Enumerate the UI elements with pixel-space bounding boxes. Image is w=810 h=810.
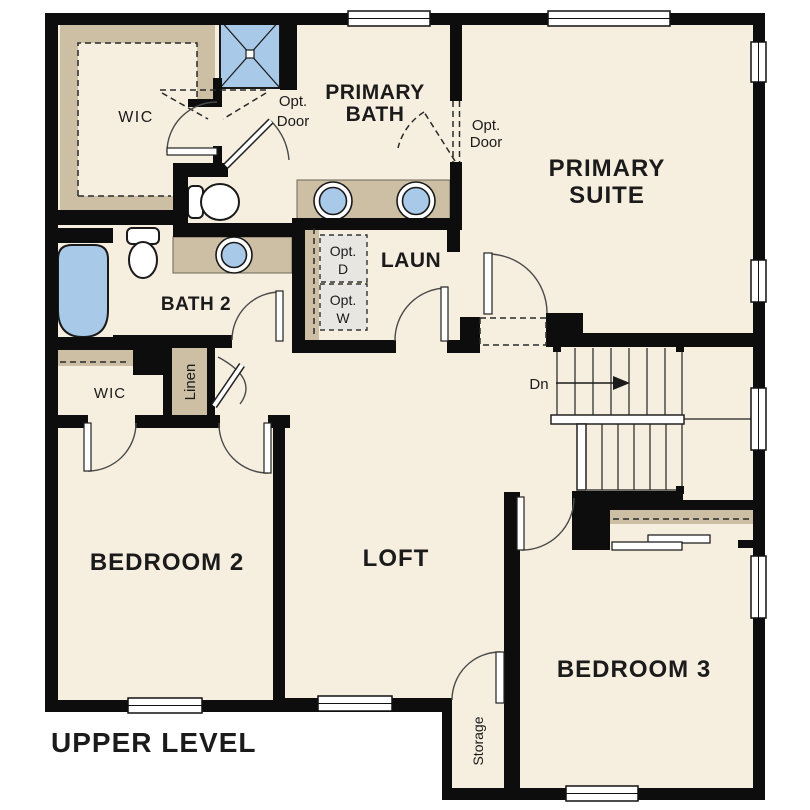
window: [751, 388, 766, 450]
room-label-bedroom2: BEDROOM 2: [90, 549, 244, 576]
sliding-door-panel: [612, 542, 682, 550]
room-label-primary-bath-line1: PRIMARY: [325, 81, 425, 104]
wall: [280, 13, 297, 90]
wall: [460, 317, 480, 347]
room-label-bedroom3: BEDROOM 3: [557, 656, 711, 683]
bedroom2-closet-shelf: [57, 348, 133, 366]
wic-shelf-right: [197, 25, 215, 103]
wall: [113, 335, 232, 348]
annotation-stairs-down: Dn: [529, 376, 548, 393]
sink-primary-left: [314, 182, 352, 220]
stair-handrail: [551, 415, 684, 424]
wall: [450, 13, 462, 101]
wall: [572, 493, 610, 550]
laundry-cabinet: [303, 225, 319, 341]
stair-stringer: [577, 424, 586, 490]
wic-shelf-left: [60, 25, 78, 210]
room-label-primary-suite-line1: PRIMARY: [549, 155, 666, 182]
wall: [45, 210, 175, 225]
room-label-loft: LOFT: [363, 545, 430, 572]
toilet-bath2: [127, 228, 159, 278]
shower-drain: [246, 50, 254, 58]
wall: [738, 540, 755, 548]
sink-primary-right: [397, 182, 435, 220]
window: [751, 42, 766, 82]
floor-plan-page: WIC PRIMARY BATH Opt. Door Opt. Door PRI…: [0, 0, 810, 810]
wall: [305, 340, 396, 353]
wall: [442, 698, 452, 800]
wall: [607, 500, 758, 510]
annotation-opt-dryer-line1: Opt.: [330, 243, 356, 259]
window: [548, 11, 670, 26]
stair-newel: [676, 344, 684, 352]
annotation-opt-door-shower-line1: Opt.: [279, 93, 307, 110]
room-label-primary-bath-line2: BATH: [346, 103, 405, 126]
wall: [45, 415, 88, 428]
wall: [135, 415, 220, 428]
annotation-opt-dryer-line2: D: [338, 261, 348, 277]
room-label-primary-suite-line2: SUITE: [569, 182, 645, 209]
window: [318, 696, 392, 711]
floor-plan-canvas: WIC PRIMARY BATH Opt. Door Opt. Door PRI…: [0, 0, 810, 810]
stair-newel: [553, 344, 561, 352]
room-label-wic-primary: WIC: [118, 109, 154, 126]
wall: [207, 343, 215, 418]
window: [348, 11, 430, 26]
wall: [45, 13, 58, 712]
annotation-opt-door-suite-line1: Opt.: [472, 117, 500, 134]
sink-bath2: [216, 237, 252, 273]
window: [566, 786, 638, 801]
wall: [173, 223, 298, 237]
wall: [447, 218, 460, 252]
plan-title: UPPER LEVEL: [51, 727, 256, 758]
floor-southeast-extension: [442, 345, 765, 800]
wall: [163, 343, 172, 418]
room-label-storage: Storage: [470, 716, 486, 765]
room-label-bath2: BATH 2: [161, 294, 231, 315]
room-label-laundry: LAUN: [381, 249, 441, 272]
window: [751, 556, 766, 618]
wall: [546, 333, 758, 347]
room-label-wic-bedroom2: WIC: [94, 385, 126, 402]
wall: [292, 218, 305, 353]
annotation-opt-door-suite-line2: Door: [470, 134, 503, 151]
wic-shelf-top: [60, 25, 215, 43]
annotation-opt-washer-line1: Opt.: [330, 292, 356, 308]
bathtub: [58, 245, 108, 337]
stair-newel: [676, 486, 684, 494]
room-label-linen: Linen: [182, 364, 199, 401]
wall: [297, 218, 460, 230]
wall: [45, 228, 113, 243]
wall: [273, 423, 285, 700]
toilet-powder: [188, 184, 239, 220]
annotation-opt-door-shower-line2: Door: [277, 113, 310, 130]
window: [751, 260, 766, 302]
wic-shelf-bottom: [60, 196, 173, 210]
annotation-opt-washer-line2: W: [336, 310, 350, 326]
window: [128, 698, 202, 713]
shower: [220, 20, 280, 88]
